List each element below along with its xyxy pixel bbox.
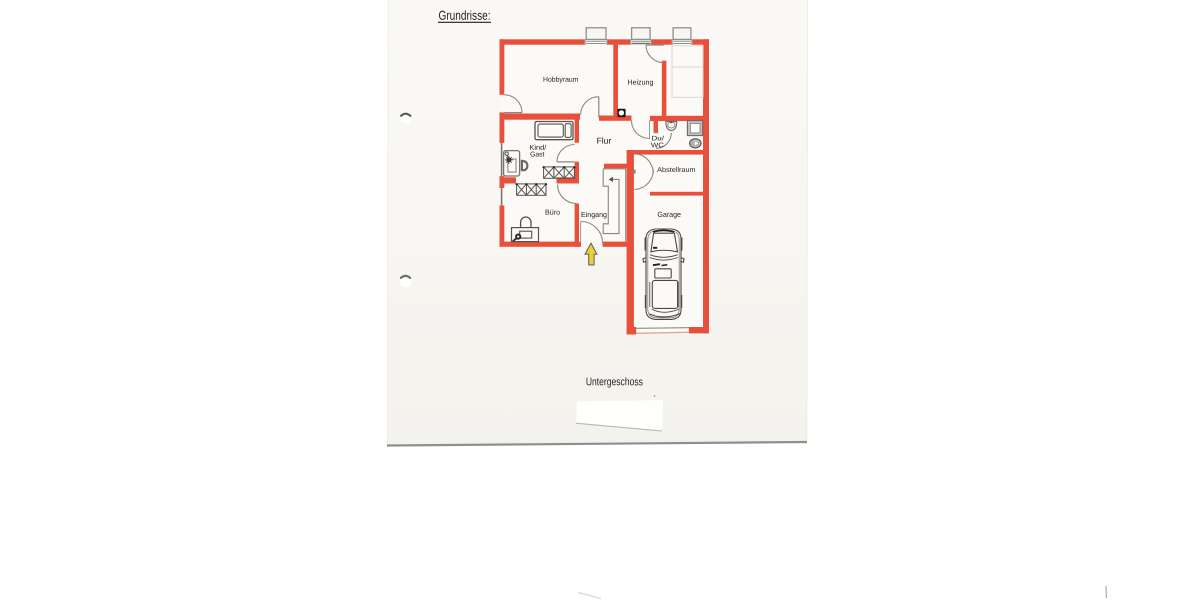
- svg-text:Flur: Flur: [597, 136, 612, 146]
- svg-text:Garage: Garage: [657, 210, 681, 219]
- svg-text:Büro: Büro: [545, 208, 560, 217]
- svg-text:Eingang: Eingang: [581, 210, 607, 219]
- svg-text:Heizung: Heizung: [627, 78, 653, 87]
- svg-text:Gast: Gast: [530, 151, 544, 158]
- svg-text:WC: WC: [651, 142, 664, 149]
- svg-text:Abstellraum: Abstellraum: [657, 167, 696, 174]
- svg-text:Untergeschoss: Untergeschoss: [586, 376, 643, 388]
- svg-text:Grundrisse:: Grundrisse:: [438, 8, 490, 23]
- svg-text:Hobbyraum: Hobbyraum: [543, 75, 578, 84]
